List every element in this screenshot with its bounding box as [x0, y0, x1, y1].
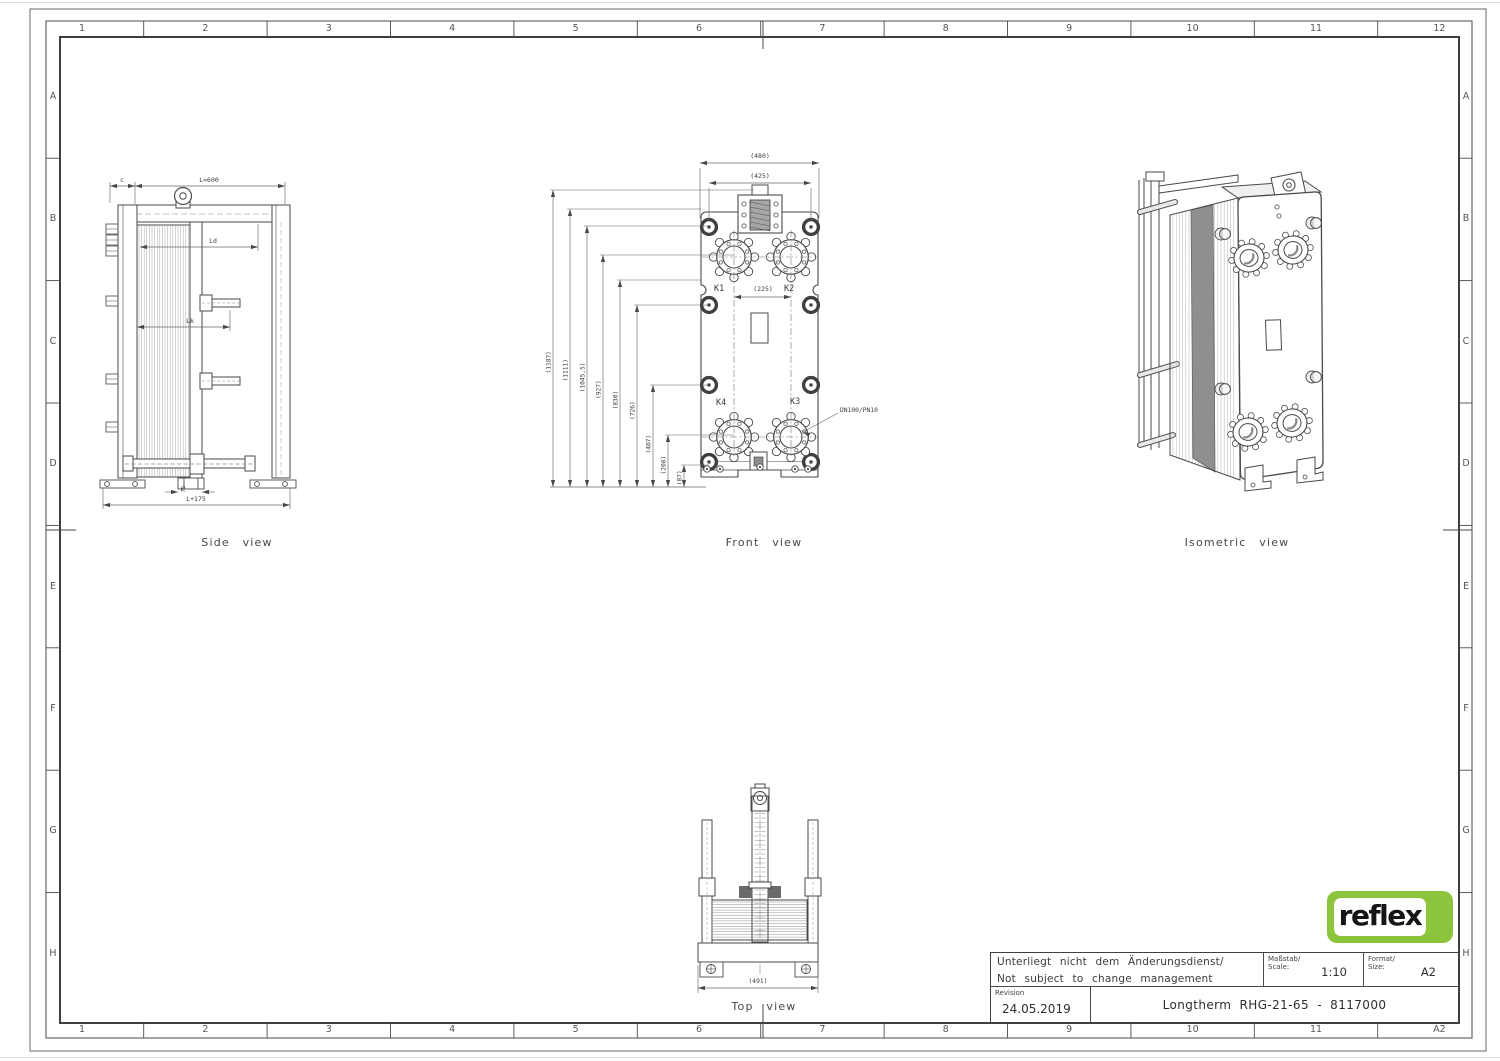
format-label-de: Format/: [1368, 955, 1395, 963]
row-label-right-G: G: [1455, 824, 1477, 838]
row-label-right-E: E: [1455, 580, 1477, 594]
caption-top-view: Top view: [684, 1000, 844, 1013]
row-label-left-F: F: [42, 702, 64, 716]
col-label-bottom-1: 1: [71, 1023, 93, 1037]
dim-height-1: (1111): [563, 359, 570, 381]
front-view-drawing: (1187)(1111)(1045,5)(927)(830)(726)(407)…: [538, 140, 893, 532]
port-label-k4: K4: [716, 398, 726, 408]
col-label-bottom-3: 3: [318, 1023, 340, 1037]
col-label-bottom-4: 4: [441, 1023, 463, 1037]
dim-height-8: (87): [677, 470, 684, 485]
format-label-en: Size:: [1368, 963, 1385, 971]
caption-front-view: Front view: [684, 536, 844, 549]
dim-height-2: (1045,5): [580, 362, 587, 392]
dim-l600: L=600: [199, 176, 219, 184]
row-label-left-H: H: [42, 947, 64, 961]
dim-ld: Ld: [209, 237, 217, 245]
row-label-left-G: G: [42, 824, 64, 838]
col-label-top-10: 10: [1182, 22, 1204, 36]
dim-height-4: (830): [613, 391, 620, 410]
col-label-bottom-9: 9: [1058, 1023, 1080, 1037]
row-label-right-F: F: [1455, 702, 1477, 716]
col-label-bottom-10: 10: [1182, 1023, 1204, 1037]
frame-plate-top: [698, 943, 818, 962]
tie-bolt-upper: [200, 295, 240, 311]
revision-cell: Revision 24.05.2019: [991, 987, 1091, 1022]
tie-bolt-long: [123, 454, 255, 474]
dim-top-width: (491): [749, 978, 768, 985]
col-label-top-7: 7: [811, 22, 833, 36]
row-label-left-D: D: [42, 457, 64, 471]
revision-label: Revision: [995, 989, 1024, 997]
col-label-top-1: 1: [71, 22, 93, 36]
col-label-bottom-7: 7: [811, 1023, 833, 1037]
format-cell: Format/ Size: A2: [1364, 953, 1458, 986]
isometric-view-drawing: [1125, 150, 1355, 518]
col-label-top-5: 5: [565, 22, 587, 36]
col-label-bottom-5: 5: [565, 1023, 587, 1037]
row-label-right-A: A: [1455, 90, 1477, 104]
row-label-left-C: C: [42, 335, 64, 349]
col-label-top-8: 8: [935, 22, 957, 36]
feet: [100, 478, 296, 489]
dim-port-spacing: (225): [753, 285, 773, 293]
row-label-left-E: E: [42, 580, 64, 594]
dim-height-6: (407): [646, 435, 653, 454]
dim-lk: Lk: [186, 317, 194, 325]
tie-rod-left: [699, 820, 715, 962]
plate-pack: [137, 225, 190, 477]
col-label-top-9: 9: [1058, 22, 1080, 36]
format-value: A2: [1421, 965, 1436, 979]
connection-label: DN100/PN10: [840, 407, 878, 414]
lifting-eye: [175, 188, 192, 209]
dim-height-0: (1187): [546, 351, 553, 373]
scale-label-en: Scale:: [1268, 963, 1289, 971]
row-label-right-B: B: [1455, 212, 1477, 226]
scale-cell: Maßstab/ Scale: 1:10: [1264, 953, 1364, 986]
top-view-drawing: (491): [665, 782, 860, 997]
dim-c: c: [120, 176, 124, 184]
col-label-top-2: 2: [194, 22, 216, 36]
change-note-en: Not subject to change management: [991, 970, 1263, 987]
revision-date: 24.05.2019: [1002, 1002, 1071, 1016]
col-label-bottom-8: 8: [935, 1023, 957, 1037]
dim-foot: 75: [181, 486, 187, 493]
row-label-right-C: C: [1455, 335, 1477, 349]
col-label-top-4: 4: [441, 22, 463, 36]
col-label-top-6: 6: [688, 22, 710, 36]
drawing-title: Longtherm RHG-21-65 - 8117000: [1091, 987, 1458, 1022]
col-label-top-12: 12: [1428, 22, 1450, 36]
format-corner-label: A2: [1428, 1023, 1450, 1037]
change-note-de: Unterliegt nicht dem Änderungsdienst/: [991, 953, 1263, 970]
tie-rod-right: [805, 820, 821, 962]
port-label-k2: K2: [784, 284, 794, 294]
col-label-bottom-11: 11: [1305, 1023, 1327, 1037]
scale-value: 1:10: [1321, 965, 1347, 979]
pressure-plate: [190, 222, 202, 480]
carrying-bar: [118, 205, 290, 222]
plate-pack-top: [712, 900, 807, 940]
scale-label-de: Maßstab/: [1268, 955, 1300, 963]
change-note-cell: Unterliegt nicht dem Änderungsdienst/ No…: [991, 953, 1264, 986]
caption-isometric-view: Isometric view: [1157, 536, 1317, 549]
dim-height-5: (726): [630, 401, 637, 420]
col-label-bottom-2: 2: [194, 1023, 216, 1037]
row-label-left-A: A: [42, 90, 64, 104]
row-label-left-B: B: [42, 212, 64, 226]
dim-height-7: (208): [661, 456, 668, 475]
caption-side-view: Side view: [157, 536, 317, 549]
col-label-bottom-6: 6: [688, 1023, 710, 1037]
dim-width-inner: (425): [750, 172, 770, 180]
tie-bolt-lower: [200, 373, 240, 389]
reflex-logo: reflex: [1327, 891, 1453, 943]
lifting-bracket-top: [751, 784, 769, 811]
dim-height-3: (927): [596, 380, 603, 399]
fixed-plate: [118, 205, 137, 478]
port-label-k1: K1: [714, 284, 724, 294]
port-label-k3: K3: [790, 397, 800, 407]
dim-width-outer: (480): [750, 152, 770, 160]
side-view-drawing: c L=600 Ld Lk 75 L+175: [95, 158, 320, 516]
row-label-right-D: D: [1455, 457, 1477, 471]
reflex-logo-text: reflex: [1334, 899, 1426, 932]
col-label-top-11: 11: [1305, 22, 1327, 36]
col-label-top-3: 3: [318, 22, 340, 36]
drawing-title-cell: Longtherm RHG-21-65 - 8117000: [1091, 987, 1458, 1022]
title-block: Unterliegt nicht dem Änderungsdienst/ No…: [990, 952, 1459, 1023]
dim-overall: L+175: [186, 495, 206, 503]
support-column: [272, 205, 290, 478]
feet-top: [700, 962, 818, 977]
